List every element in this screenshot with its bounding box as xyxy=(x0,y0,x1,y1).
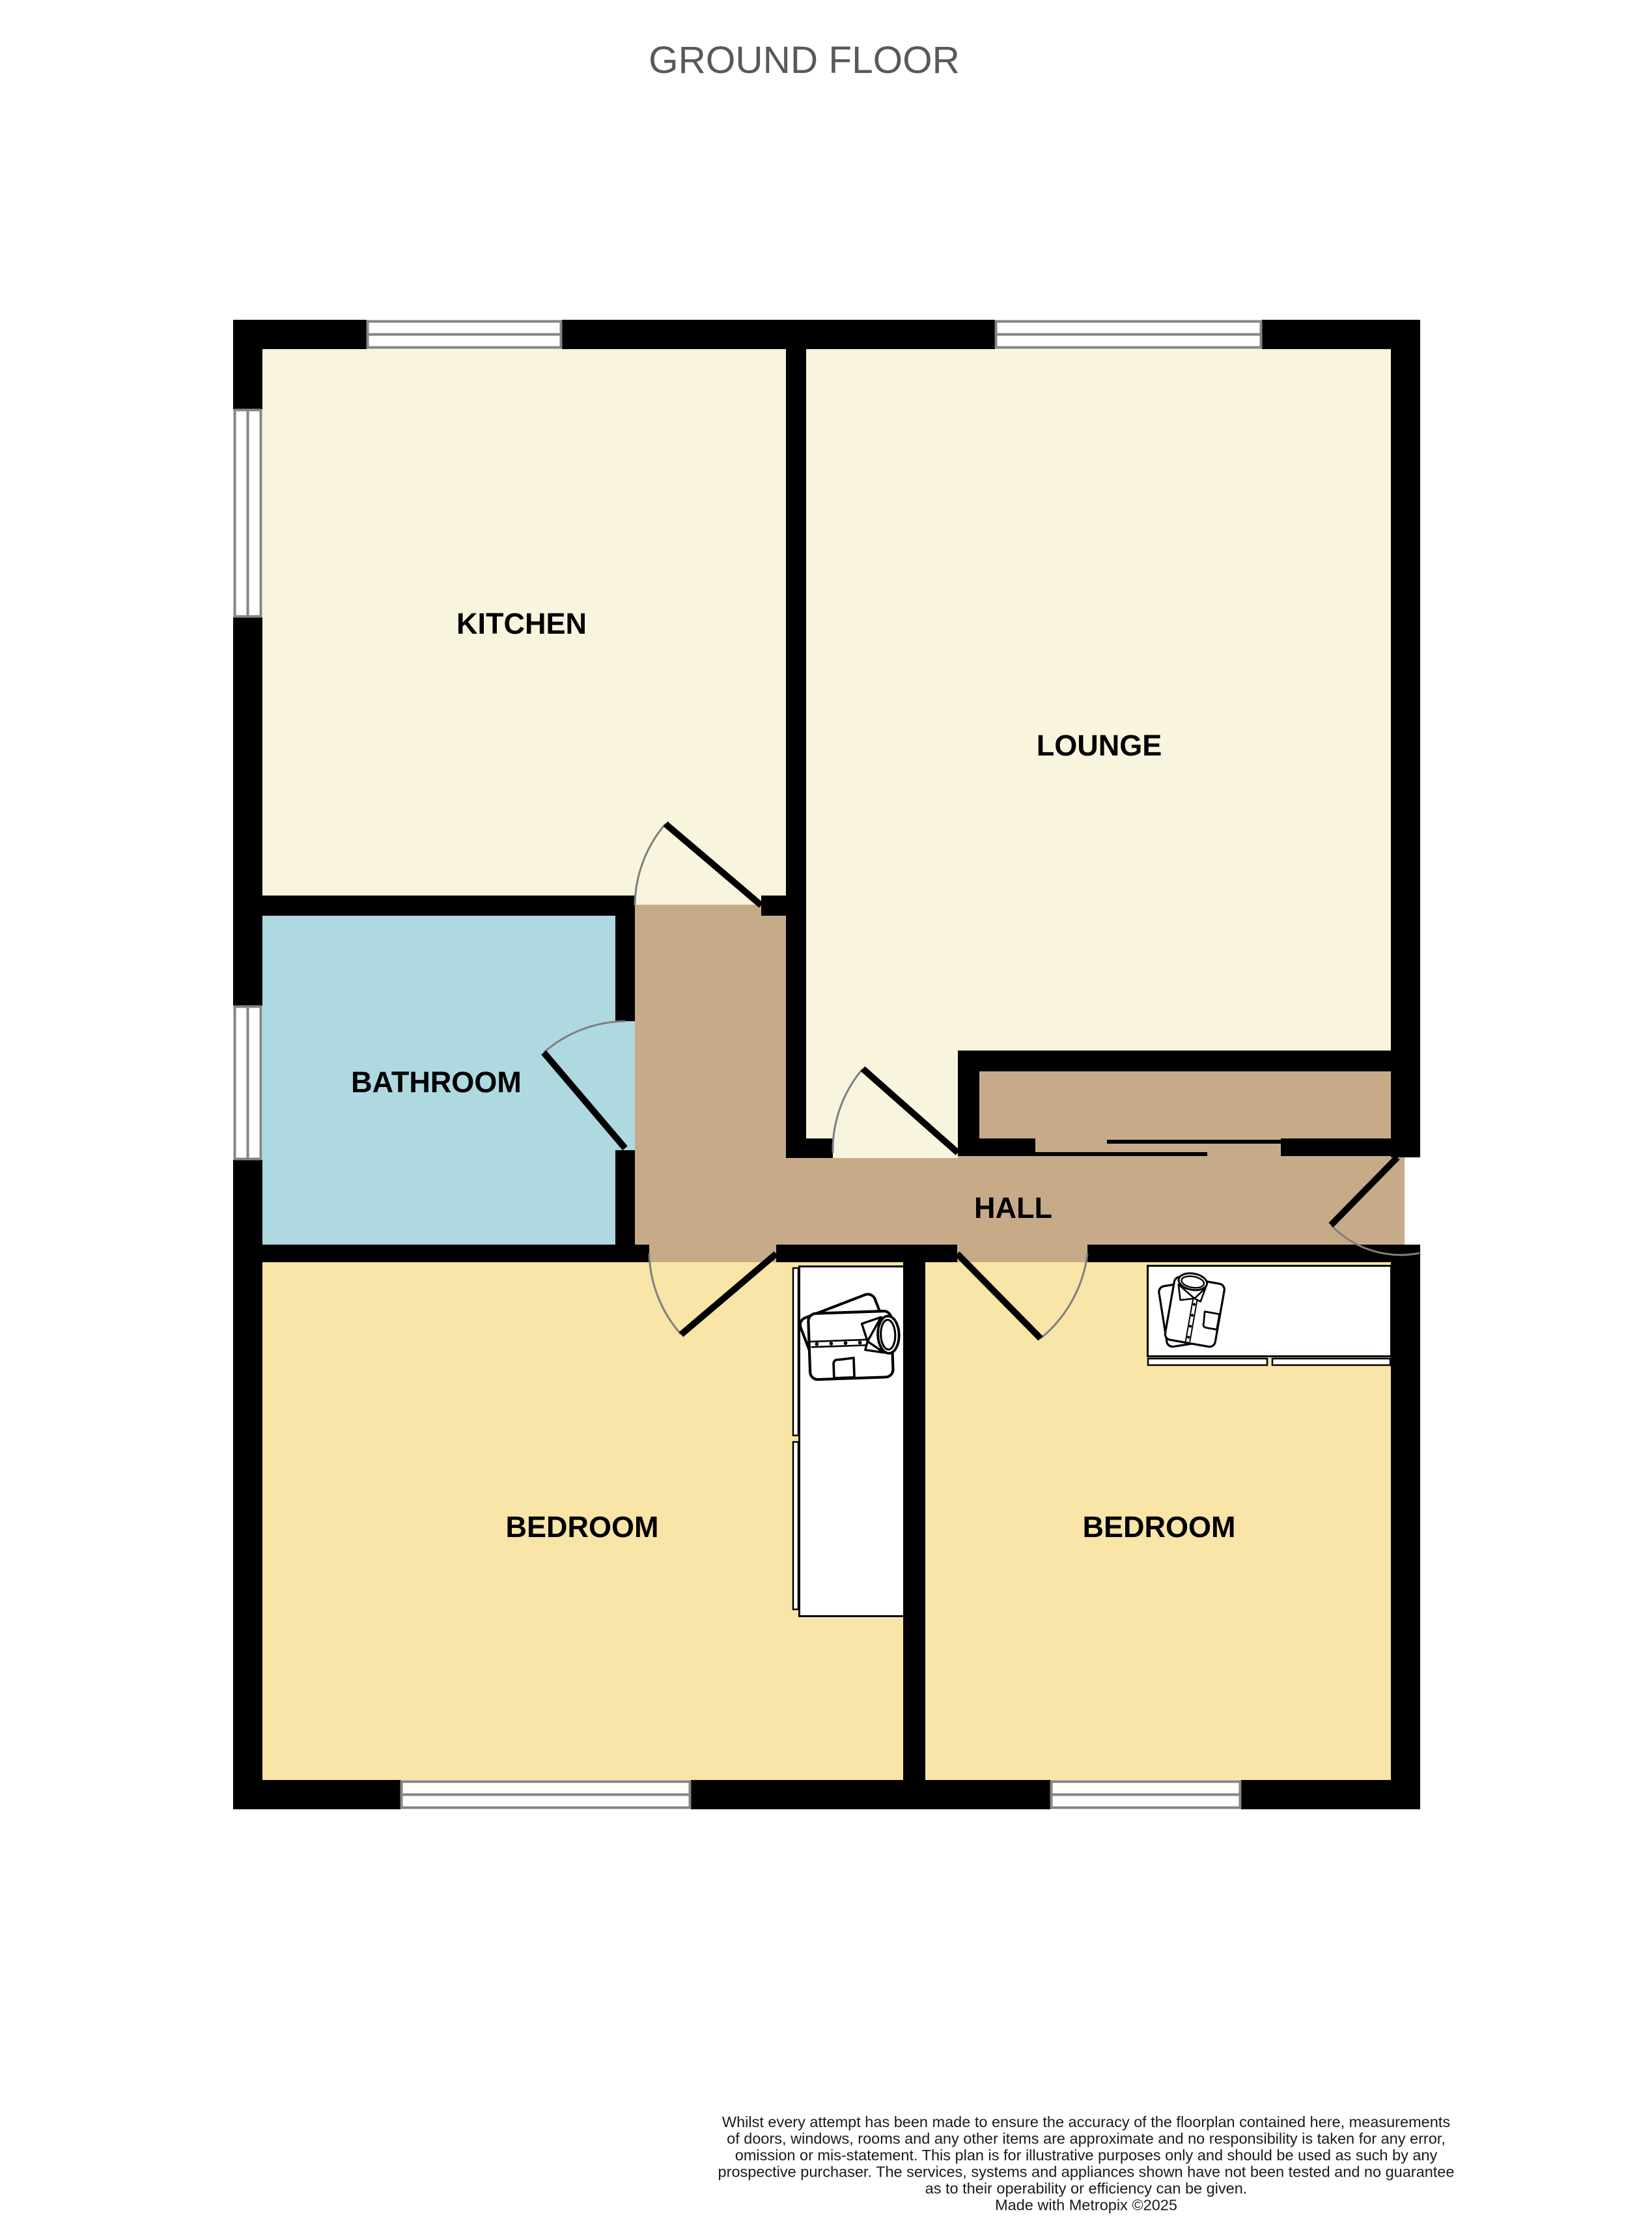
svg-text:HALL: HALL xyxy=(974,1191,1052,1224)
svg-text:BEDROOM: BEDROOM xyxy=(506,1510,659,1544)
svg-text:LOUNGE: LOUNGE xyxy=(1037,729,1162,762)
svg-text:Whilst every attempt has been: Whilst every attempt has been made to en… xyxy=(722,2113,1450,2130)
svg-text:GROUND FLOOR: GROUND FLOOR xyxy=(649,39,960,81)
svg-text:BEDROOM: BEDROOM xyxy=(1083,1510,1236,1544)
svg-text:of doors, windows, rooms and a: of doors, windows, rooms and any other i… xyxy=(727,2130,1446,2147)
svg-text:KITCHEN: KITCHEN xyxy=(456,607,587,640)
svg-text:omission or mis-statement. Thi: omission or mis-statement. This plan is … xyxy=(735,2147,1438,2164)
svg-text:Made with Metropix ©2025: Made with Metropix ©2025 xyxy=(995,2197,1177,2214)
svg-text:BATHROOM: BATHROOM xyxy=(351,1066,522,1099)
svg-text:as to their operability or eff: as to their operability or efficiency ca… xyxy=(925,2180,1248,2197)
svg-text:prospective purchaser. The ser: prospective purchaser. The services, sys… xyxy=(718,2164,1455,2181)
